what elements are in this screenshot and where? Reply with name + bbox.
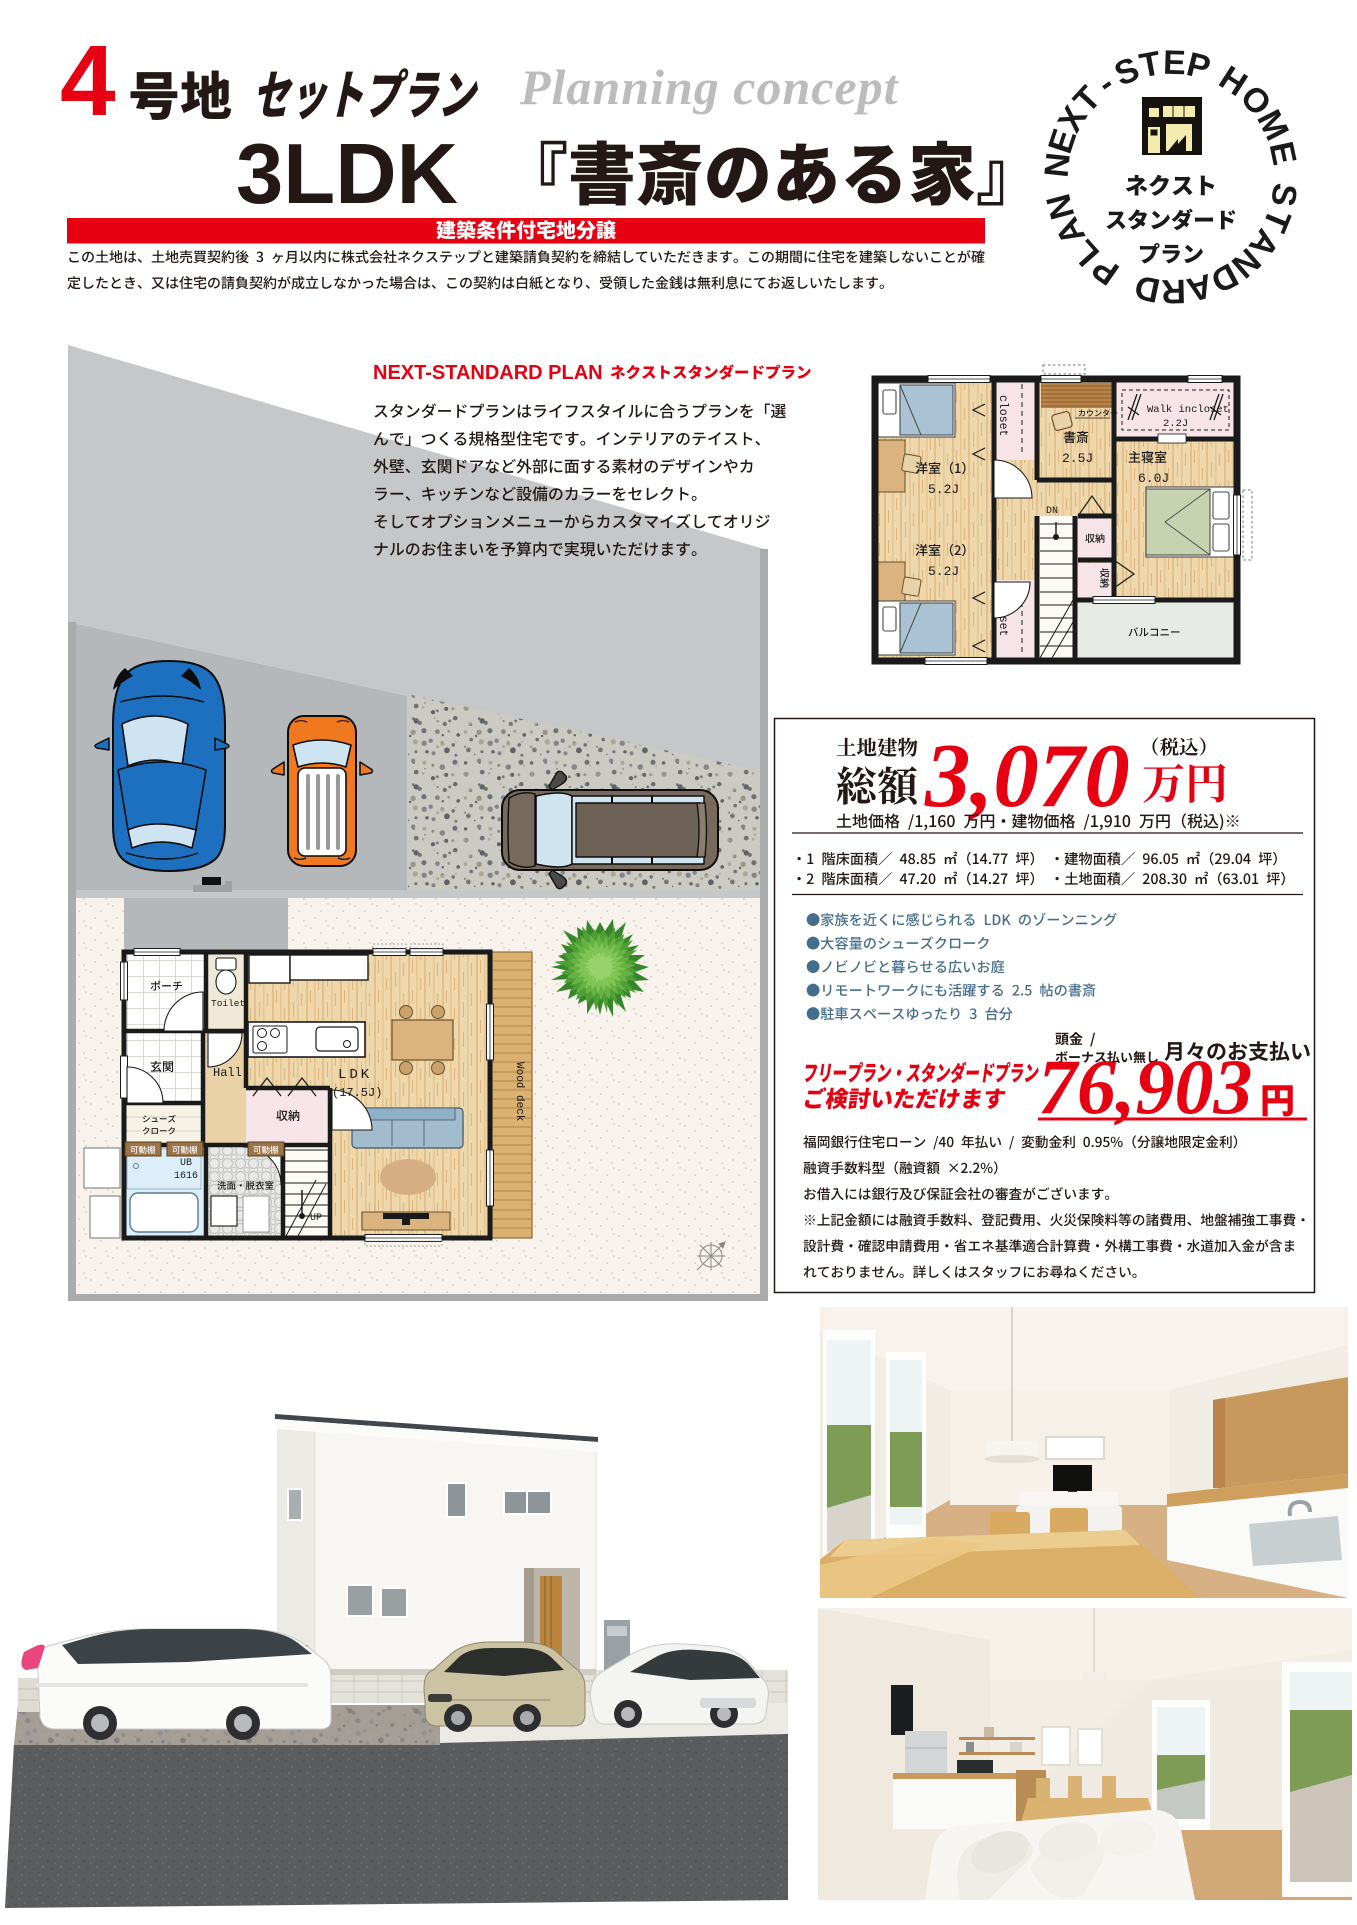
svg-text:E: E [1163, 44, 1187, 83]
svg-text:6.0J: 6.0J [1138, 471, 1169, 486]
svg-text:4: 4 [60, 25, 116, 137]
svg-text:2.2J: 2.2J [1163, 418, 1188, 430]
svg-text:R: R [1161, 272, 1186, 311]
svg-text:Hall: Hall [213, 1066, 242, 1080]
svg-text:5.2J: 5.2J [928, 482, 959, 497]
svg-text:Wood deck: Wood deck [513, 1062, 525, 1122]
svg-text:DN: DN [1046, 506, 1058, 517]
svg-text:closet: closet [996, 395, 1009, 436]
svg-text:UB: UB [180, 1158, 192, 1169]
svg-text:LDK: LDK [338, 1067, 372, 1083]
svg-text:76,903: 76,903 [1038, 1043, 1253, 1130]
svg-text:3,070: 3,070 [924, 725, 1130, 826]
svg-text:Planning concept: Planning concept [519, 59, 900, 115]
svg-text:UP: UP [310, 1213, 322, 1224]
svg-text:P: P [1183, 45, 1214, 87]
svg-text:3LDK: 3LDK [236, 127, 458, 222]
svg-text:Walk incloset: Walk incloset [1147, 404, 1229, 416]
svg-text:2.5J: 2.5J [1062, 451, 1093, 466]
svg-text:(17.5J): (17.5J) [332, 1086, 382, 1100]
svg-text:NEXT-STANDARD PLAN: NEXT-STANDARD PLAN [373, 362, 603, 384]
svg-text:Toilet: Toilet [211, 998, 245, 1009]
svg-text:S: S [1263, 181, 1304, 209]
svg-text:5.2J: 5.2J [928, 564, 959, 579]
svg-text:D: D [1131, 267, 1163, 309]
svg-text:1616: 1616 [174, 1171, 198, 1182]
